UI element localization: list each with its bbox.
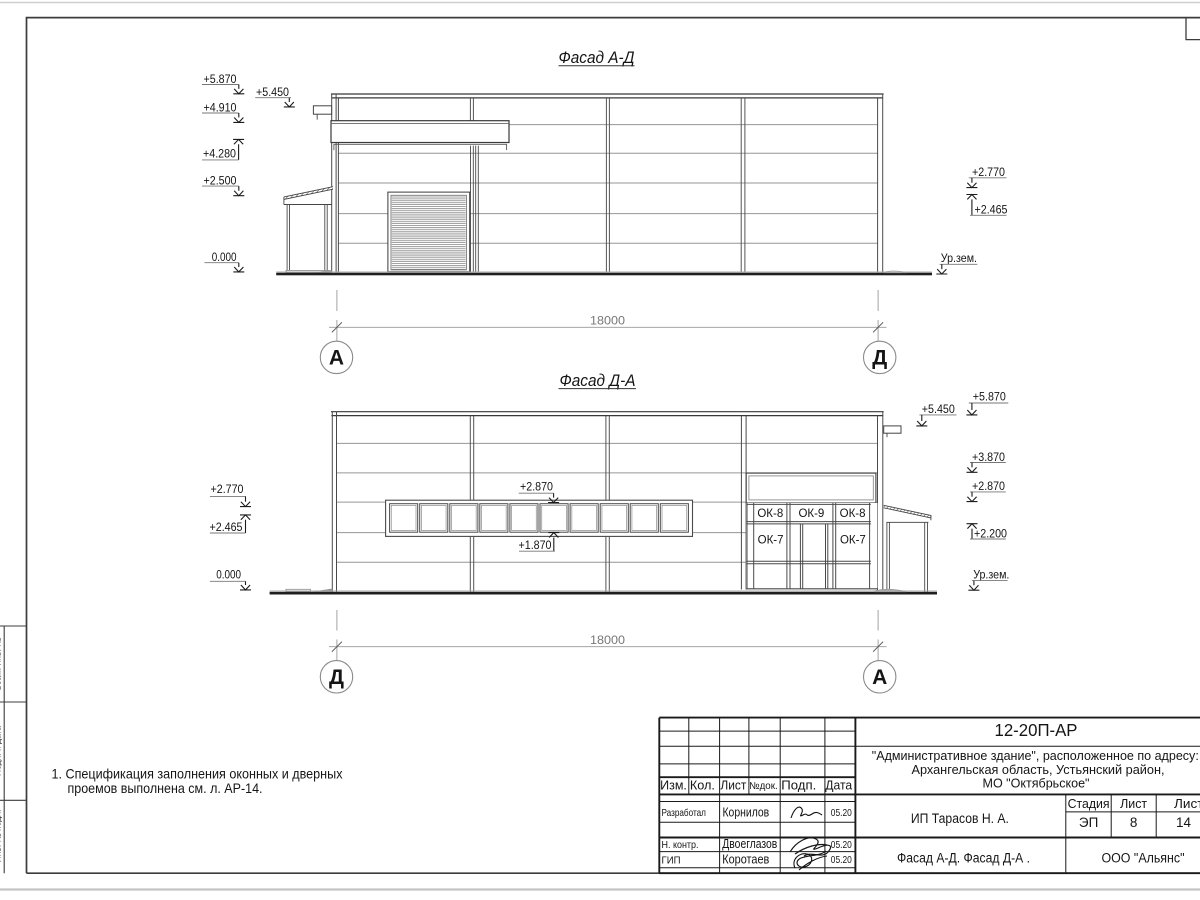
svg-text:Подп.: Подп. <box>781 778 816 793</box>
svg-text:проемов выполнена см. л. АР-14: проемов выполнена см. л. АР-14. <box>68 780 263 796</box>
svg-text:ОК-8: ОК-8 <box>757 508 783 520</box>
svg-text:05.20: 05.20 <box>831 807 852 819</box>
svg-text:+1.870: +1.870 <box>519 540 552 552</box>
svg-text:+4.280: +4.280 <box>203 149 236 161</box>
svg-text:14: 14 <box>1176 815 1192 830</box>
svg-text:Н. контр.: Н. контр. <box>662 839 699 851</box>
svg-text:Фасад А-Д: Фасад А-Д <box>559 48 635 67</box>
svg-text:+2.465: +2.465 <box>210 522 243 534</box>
svg-text:18000: 18000 <box>590 633 625 647</box>
svg-text:Разработал: Разработал <box>662 807 706 819</box>
svg-text:Д: Д <box>329 666 344 689</box>
svg-text:Корнилов: Корнилов <box>723 805 770 819</box>
svg-text:Взам. инв. №: Взам. инв. № <box>0 638 3 691</box>
svg-text:А: А <box>872 666 887 689</box>
svg-text:Кол.: Кол. <box>690 778 715 793</box>
svg-text:+5.870: +5.870 <box>204 74 237 86</box>
svg-text:Фасад Д-А: Фасад Д-А <box>560 371 636 390</box>
svg-text:ООО "Альянс": ООО "Альянс" <box>1102 850 1185 865</box>
svg-text:ГИП: ГИП <box>662 854 681 866</box>
svg-text:+4.910: +4.910 <box>204 102 237 114</box>
svg-text:12-20П-АР: 12-20П-АР <box>995 720 1078 740</box>
svg-text:ОК-7: ОК-7 <box>758 535 784 547</box>
svg-text:Лист: Лист <box>1120 796 1147 811</box>
svg-text:Коротаев: Коротаев <box>722 852 769 866</box>
svg-text:+2.200: +2.200 <box>974 528 1007 540</box>
svg-text:1. Спецификация заполнения око: 1. Спецификация заполнения оконных и две… <box>52 766 343 782</box>
svg-text:0.000: 0.000 <box>212 252 237 264</box>
svg-text:Дата: Дата <box>825 778 853 793</box>
svg-text:+5.450: +5.450 <box>256 87 289 99</box>
svg-text:Д: Д <box>872 347 887 370</box>
svg-text:+5.450: +5.450 <box>922 404 955 416</box>
svg-text:Лист: Лист <box>720 778 746 793</box>
svg-text:Ур.зем.: Ур.зем. <box>973 570 1009 582</box>
svg-text:Двоеглазов: Двоеглазов <box>722 837 777 851</box>
svg-text:Листов: Листов <box>1174 796 1200 811</box>
svg-text:+2.770: +2.770 <box>211 484 244 496</box>
svg-text:МО "Октябрьское": МО "Октябрьское" <box>983 777 1090 791</box>
svg-text:+2.870: +2.870 <box>972 481 1005 493</box>
svg-text:А: А <box>329 347 344 370</box>
svg-text:Стадия: Стадия <box>1068 796 1110 811</box>
svg-text:+2.465: +2.465 <box>975 205 1008 217</box>
svg-text:18000: 18000 <box>590 314 625 328</box>
svg-text:+2.500: +2.500 <box>204 175 237 187</box>
svg-text:№док.: №док. <box>749 781 778 792</box>
svg-text:Инв. № подл.: Инв. № подл. <box>0 810 3 863</box>
svg-text:ОК-9: ОК-9 <box>798 508 824 520</box>
svg-text:"Административное здание", рас: "Административное здание", расположенное… <box>872 749 1199 763</box>
svg-text:Подп. и дата: Подп. и дата <box>0 726 3 776</box>
svg-text:05.20: 05.20 <box>831 839 852 851</box>
svg-text:+2.870: +2.870 <box>520 481 553 493</box>
svg-text:+5.870: +5.870 <box>973 392 1006 404</box>
svg-text:ОК-8: ОК-8 <box>840 508 866 520</box>
svg-text:05.20: 05.20 <box>831 854 852 866</box>
svg-text:8: 8 <box>1130 815 1138 830</box>
svg-text:Архангельская область, Устьянс: Архангельская область, Устьянский район, <box>912 763 1165 777</box>
svg-text:ИП Тарасов Н. А.: ИП Тарасов Н. А. <box>911 811 1009 826</box>
svg-text:ОК-7: ОК-7 <box>840 535 866 547</box>
svg-text:Изм.: Изм. <box>660 778 687 793</box>
svg-text:Фасад А-Д. Фасад Д-А .: Фасад А-Д. Фасад Д-А . <box>897 850 1030 865</box>
svg-text:ЭП: ЭП <box>1079 815 1098 830</box>
svg-text:Ур.зем.: Ур.зем. <box>941 253 977 265</box>
svg-text:0.000: 0.000 <box>216 569 241 581</box>
